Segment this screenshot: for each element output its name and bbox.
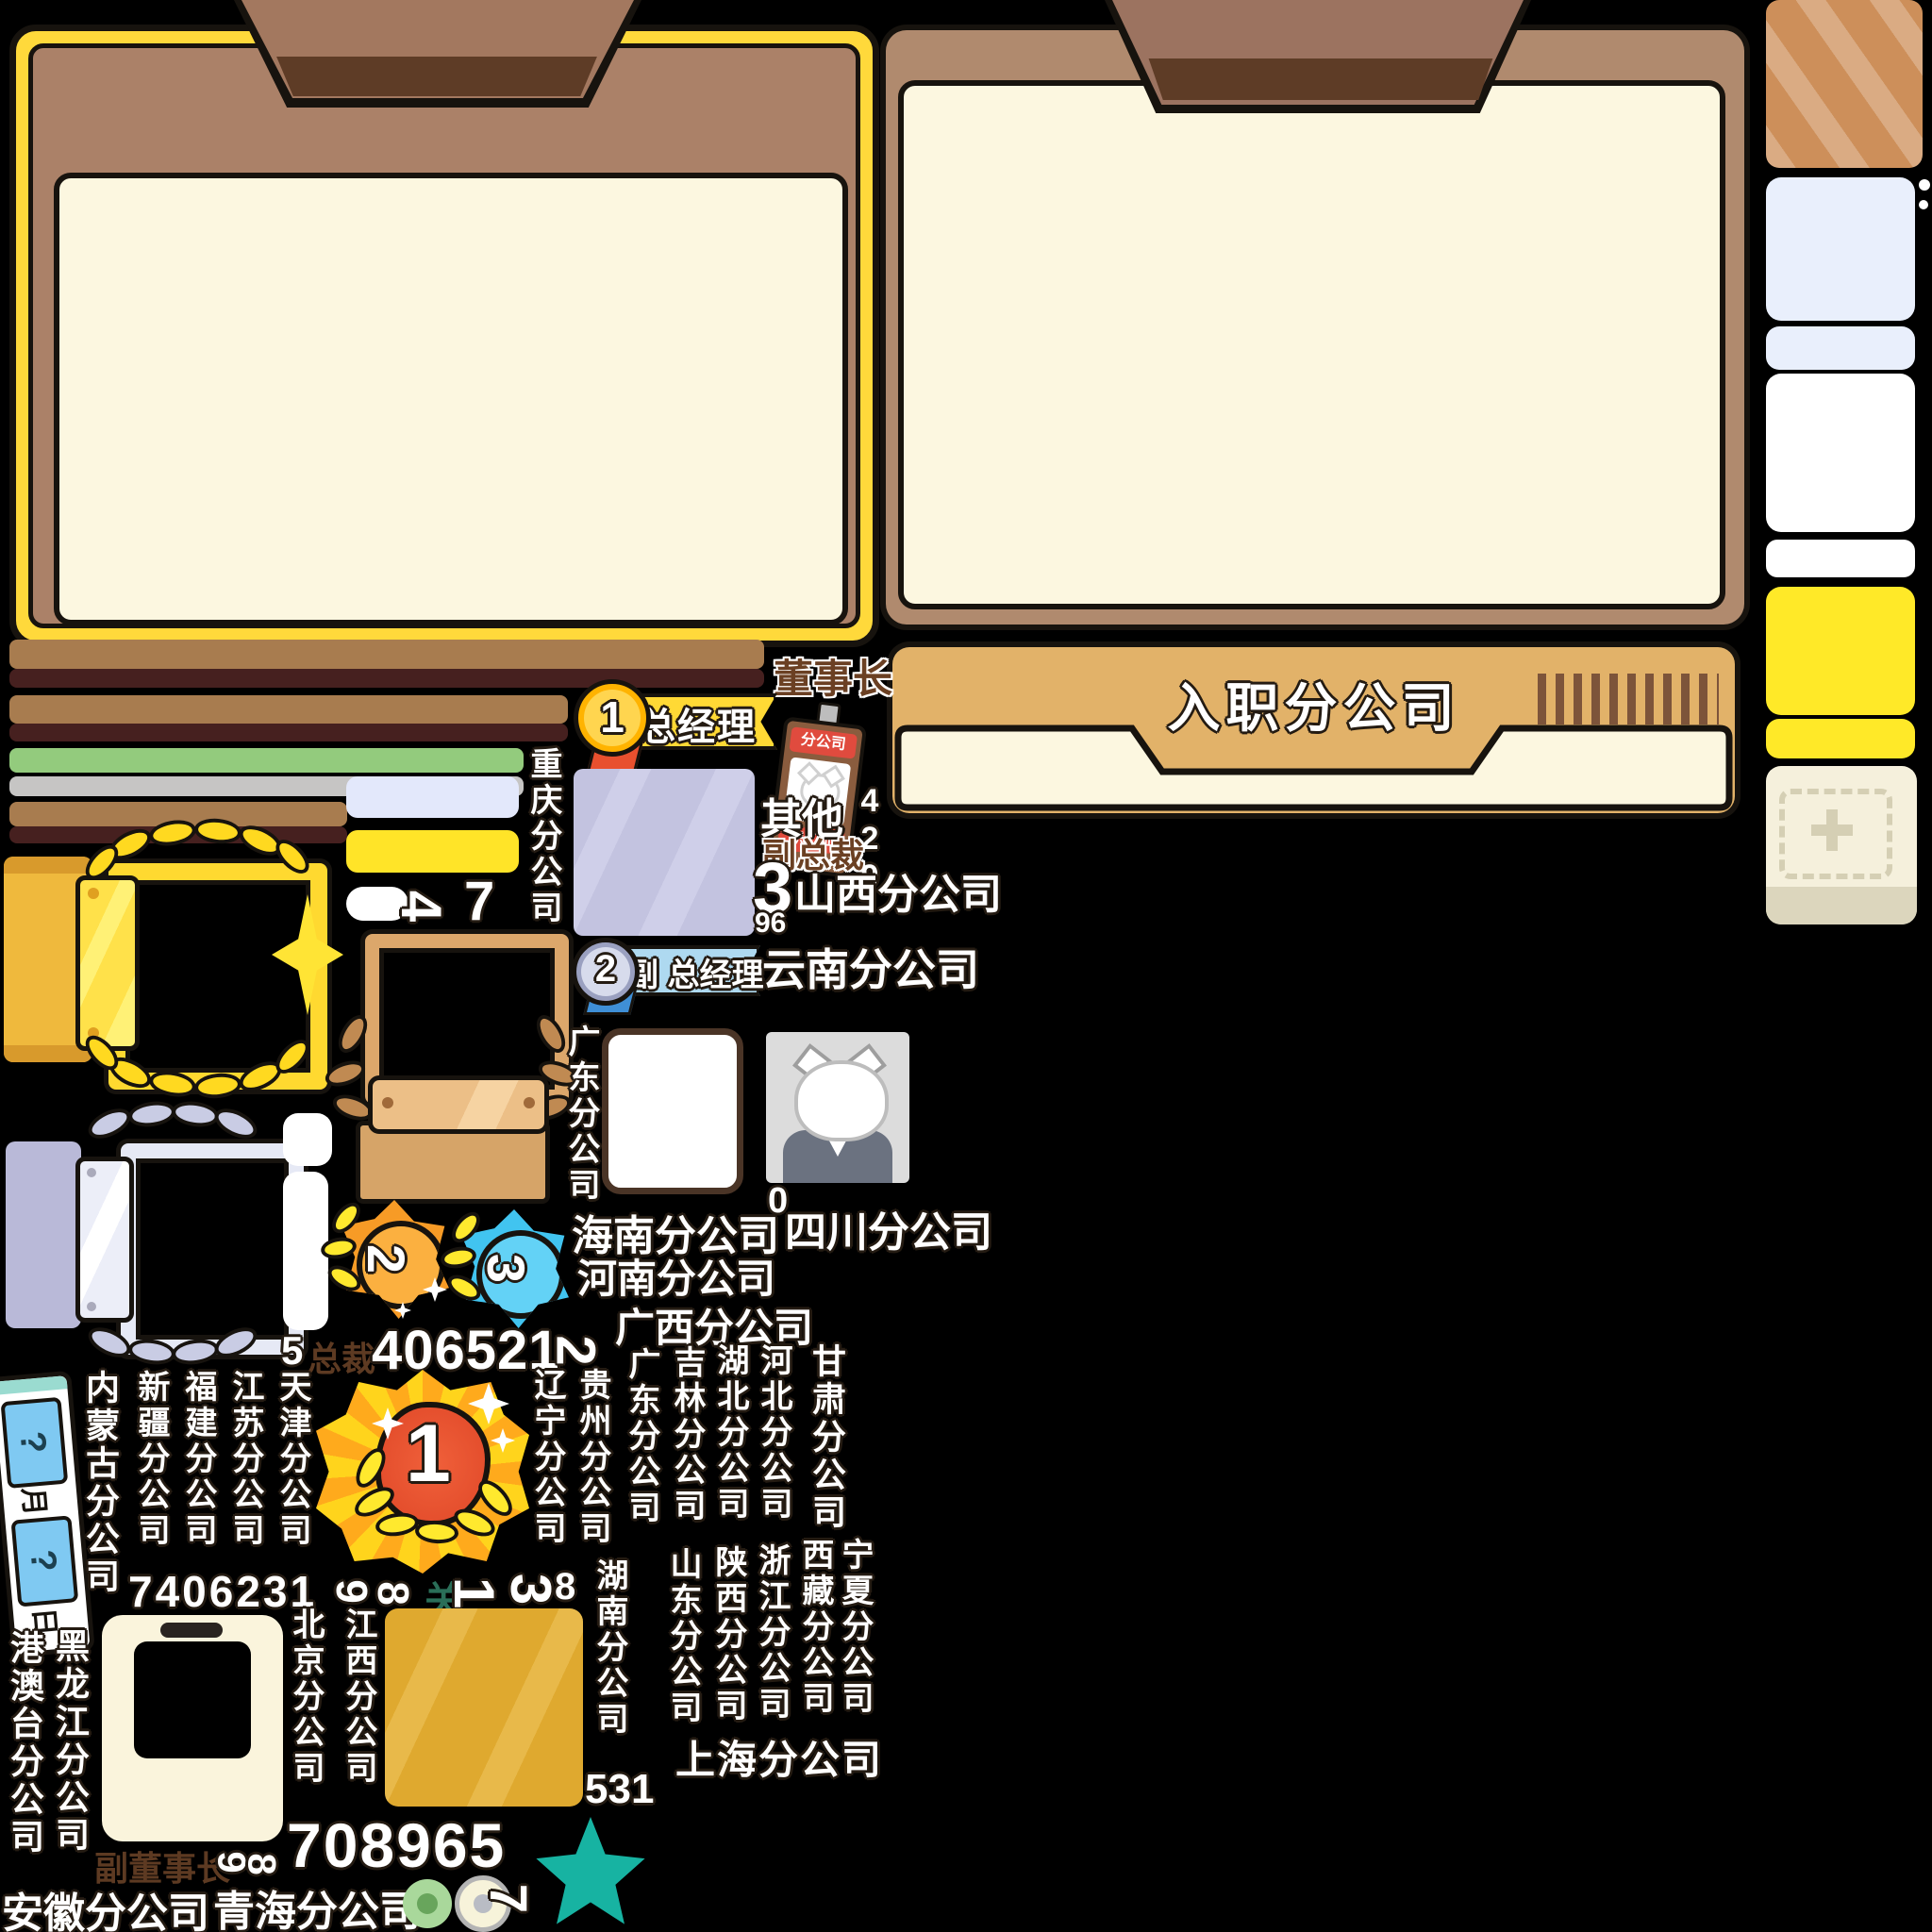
yellow-button-small[interactable] (1766, 719, 1915, 758)
branch-jilin: 吉林分公司 (664, 1345, 710, 1524)
branch-guangdong2: 广东分公司 (619, 1347, 665, 1526)
bar-brown-3 (9, 802, 347, 826)
branch-qinghai: 青海分公司 (213, 1877, 421, 1932)
branch-hubei: 湖北分公司 (708, 1343, 754, 1523)
rank1-label: 总经理 (638, 696, 757, 751)
branch-anhui: 安徽分公司 (2, 1879, 209, 1932)
panel-right (880, 25, 1750, 630)
number-708965: 708965 (287, 1809, 506, 1881)
branch-zhejiang: 浙江分公司 (749, 1543, 795, 1723)
lavender-plaque (6, 1141, 81, 1328)
join-branch-card[interactable]: 入职分公司 (887, 641, 1740, 819)
rank2-medal: 2 (572, 938, 640, 1006)
number-4: 4 (406, 874, 437, 939)
sparkle-dot-2 (1919, 200, 1928, 209)
branch-fujian: 福建分公司 (175, 1370, 222, 1549)
bar-maroon-2 (9, 724, 568, 741)
star-medal-2: 2 (340, 1200, 449, 1319)
branch-heilongjiang: 黑龙江分公司 (45, 1628, 94, 1855)
cat-head (794, 1060, 889, 1141)
calendar-screen-1: ? (0, 1397, 68, 1489)
panel-right-content (898, 80, 1725, 609)
branch-ningxia: 宁夏分公司 (832, 1538, 878, 1717)
branch-tianjin: 天津分公司 (270, 1370, 316, 1549)
big-id-card-slot (160, 1623, 223, 1638)
silver-frame-plate (75, 1157, 134, 1323)
green-circle-token[interactable] (403, 1879, 452, 1928)
number-8b: 8 (555, 1566, 575, 1608)
big-id-card-photo (134, 1641, 251, 1758)
plus-icon (1811, 809, 1853, 851)
branch-jiangsu: 江苏分公司 (223, 1370, 269, 1549)
branch-gansu: 甘肃分公司 (802, 1343, 851, 1532)
panel-left-content (54, 173, 848, 625)
yellow-pill[interactable] (346, 830, 519, 873)
white-card[interactable] (602, 1028, 743, 1194)
bar-brown-2 (9, 695, 568, 724)
number-5: 5 (281, 1328, 303, 1374)
branch-sichuan: 四川分公司 (785, 1198, 992, 1258)
calendar-q2: ? (22, 1548, 64, 1574)
white-button-small[interactable] (1766, 540, 1915, 577)
white-pill-b[interactable] (283, 1172, 328, 1330)
sprite-atlas-stage: 入职分公司 董事长 总经理 1 分公司 职工证 其他 (0, 0, 1932, 1932)
branch-liaoning: 辽宁分公司 (525, 1368, 571, 1547)
panel-right-tab-inner (1141, 58, 1500, 100)
branch-guangdong: 广东分公司 (558, 1024, 605, 1204)
rank1-medal-number: 1 (578, 691, 646, 742)
branch-shaanxi: 陕西分公司 (706, 1545, 752, 1724)
branch-xinjiang: 新疆分公司 (128, 1370, 175, 1549)
branch-jiangxi: 江西分公司 (336, 1607, 382, 1787)
lavender-pill[interactable] (346, 776, 519, 818)
rank2-medal-number: 2 (576, 948, 635, 991)
silver-frame (121, 1143, 304, 1355)
branch-beijing: 北京分公司 (283, 1607, 329, 1787)
blue-button-large[interactable] (1766, 177, 1915, 321)
teal-star[interactable] (534, 1817, 647, 1926)
big-medal-number: 1 (406, 1407, 451, 1501)
white-button-large[interactable] (1766, 374, 1915, 532)
bar-green (9, 748, 524, 773)
branch-neimenggu: 内蒙古分公司 (75, 1370, 125, 1596)
branch-shandong: 山东分公司 (660, 1547, 707, 1726)
join-branch-card-inner (894, 724, 1733, 811)
cat-avatar (766, 1032, 909, 1183)
panel-left-tab-inner (270, 57, 604, 96)
branch-chongqing: 重庆分公司 (521, 747, 567, 926)
calendar-q1: ? (11, 1430, 54, 1456)
star-medal-3: 3 (459, 1209, 569, 1328)
rank2-label: 副 总经理 (626, 949, 763, 995)
barcode (1538, 674, 1719, 724)
calendar-screen-2: ? (10, 1515, 78, 1607)
bar-maroon-1 (9, 669, 764, 688)
number-7b-rot: 7 (494, 1868, 524, 1929)
branch-hunan: 湖南分公司 (587, 1558, 633, 1738)
brown-striped-tile[interactable] (1766, 0, 1923, 168)
white-pill-a[interactable] (283, 1113, 332, 1166)
blue-button-small[interactable] (1766, 326, 1915, 370)
branch-hebei: 河北分公司 (751, 1343, 797, 1523)
gold-frame-plate (75, 875, 140, 1051)
add-slot-card[interactable] (1766, 766, 1917, 924)
number-96: 96 (755, 908, 786, 940)
branch-guizhou: 贵州分公司 (570, 1368, 616, 1547)
branch-shanxi: 山西分公司 (794, 860, 1002, 921)
panel-left (9, 25, 879, 647)
branch-gangaotai: 港澳台分公司 (0, 1630, 49, 1857)
add-slot-footer (1766, 887, 1917, 924)
branch-yunnan: 云南分公司 (762, 936, 979, 998)
rank1-medal: 1 (574, 679, 651, 757)
sparkle-dot-1 (1919, 179, 1930, 191)
lavender-square (574, 769, 755, 936)
employee-id-badge-top-band: 分公司 (789, 726, 858, 758)
star-medal-3-number: 3 (491, 1238, 521, 1299)
wood-sign-plank (368, 1075, 549, 1134)
number-7: 7 (464, 870, 494, 933)
big-id-card (102, 1615, 283, 1841)
branch-shanghai: 上海分公司 (675, 1728, 883, 1786)
bar-brown-1 (9, 640, 764, 669)
chairman-label: 董事长 (774, 647, 892, 705)
yellow-button-large[interactable] (1766, 587, 1915, 715)
gold-square[interactable] (385, 1608, 583, 1807)
star-medal-2-number: 2 (372, 1228, 401, 1290)
number-531: 531 (585, 1766, 654, 1813)
president-label: 总裁 (308, 1332, 375, 1381)
